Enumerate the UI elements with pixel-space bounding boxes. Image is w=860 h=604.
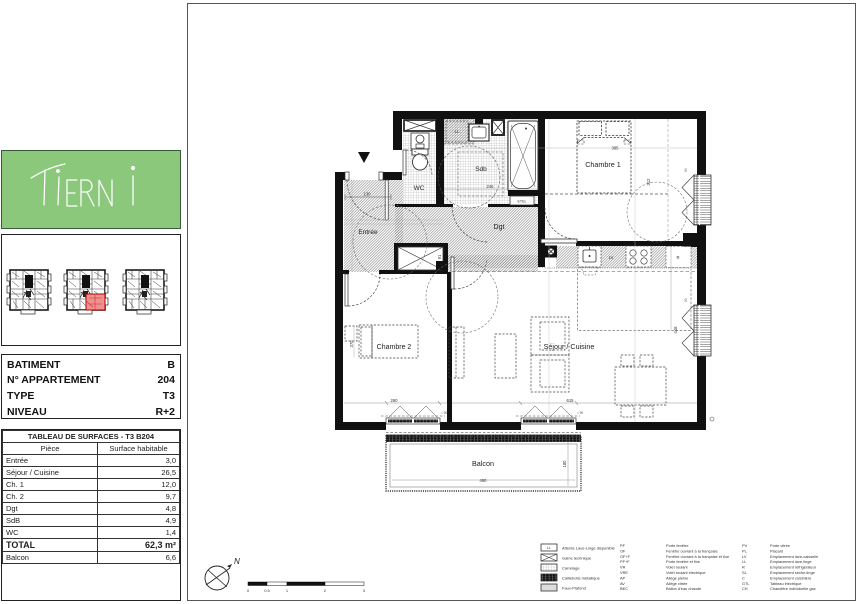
svg-text:R: R [742,565,745,570]
svg-text:SL: SL [742,570,748,575]
svg-text:VRE: VRE [620,570,628,575]
svg-text:Emplacement lave-vaisselle: Emplacement lave-vaisselle [770,554,818,559]
svg-text:PF: PF [620,543,626,548]
svg-text:PV: PV [742,543,748,548]
svg-text:Dgt: Dgt [494,224,505,231]
svg-text:Porte fenêtre: Porte fenêtre [666,543,689,548]
svg-text:CH: CH [742,586,748,591]
svg-text:Chambre 1: Chambre 1 [585,160,621,169]
svg-text:Faux-Plafond: Faux-Plafond [562,586,586,591]
svg-text:0.5: 0.5 [264,588,270,593]
svg-text:ETEL: ETEL [518,200,527,204]
svg-text:LL: LL [547,546,551,550]
svg-text:Emplacement lave-linge: Emplacement lave-linge [770,559,812,564]
svg-text:≈ 90: ≈ 90 [441,411,447,415]
svg-text:90: 90 [684,168,688,172]
svg-text:BEC: BEC [620,586,628,591]
svg-text:OF: OF [620,548,626,553]
svg-text:Emplacement cuisinière: Emplacement cuisinière [770,575,811,580]
svg-text:Ballon d'eau chaude: Ballon d'eau chaude [666,586,701,591]
svg-text:Porte fenêtre et fixe: Porte fenêtre et fixe [666,559,700,564]
svg-text:Volet roulant électrique: Volet roulant électrique [666,570,706,575]
svg-text:Porte vitrée: Porte vitrée [770,543,790,548]
svg-text:90: 90 [684,298,688,302]
svg-text:Volet roulant: Volet roulant [666,565,689,570]
svg-text:Emplacement sèche-linge: Emplacement sèche-linge [770,570,815,575]
svg-text:R: R [676,255,679,260]
svg-text:OF+F: OF+F [620,554,631,559]
svg-text:Fenêtre ouvrant à la française: Fenêtre ouvrant à la française [666,548,718,553]
svg-text:130: 130 [364,192,372,197]
svg-text:Carrelage: Carrelage [562,566,580,571]
svg-text:LV: LV [742,554,747,559]
svg-text:385: 385 [612,146,620,151]
svg-text:Entrée: Entrée [358,229,378,236]
svg-text:Caillebotis métallique: Caillebotis métallique [562,576,601,581]
svg-text:370: 370 [349,340,354,348]
svg-text:Balcon: Balcon [472,459,494,468]
svg-text:490: 490 [480,478,488,483]
svg-text:AV: AV [620,581,625,586]
svg-text:≈ 90: ≈ 90 [577,411,583,415]
svg-text:0: 0 [247,588,250,593]
svg-text:LV: LV [609,255,614,260]
svg-text:91: 91 [437,254,442,259]
svg-text:448: 448 [673,326,678,334]
svg-text:Allège vitrée: Allège vitrée [666,581,687,586]
svg-text:Placard: Placard [770,548,783,553]
svg-text:WC: WC [414,185,425,192]
svg-text:Chambre 2: Chambre 2 [377,344,412,351]
svg-text:PF+F: PF+F [620,559,630,564]
svg-text:N: N [234,557,240,566]
svg-text:Tableau électrique: Tableau électrique [770,581,802,586]
svg-text:180: 180 [562,460,567,468]
svg-text:GTL: GTL [742,581,750,586]
svg-text:LL: LL [742,559,747,564]
svg-text:Allège pleine: Allège pleine [666,575,688,580]
svg-text:312: 312 [646,178,651,186]
svg-text:Sdb: Sdb [475,166,487,173]
svg-text:246: 246 [487,184,495,189]
svg-text:2: 2 [324,588,327,593]
svg-text:1: 1 [286,588,289,593]
svg-text:615: 615 [567,398,575,403]
svg-text:Gaine technique: Gaine technique [562,556,592,561]
svg-text:VR: VR [620,565,626,570]
svg-text:AP: AP [620,575,626,580]
svg-text:C: C [742,575,745,580]
svg-text:PL: PL [742,548,748,553]
svg-text:Emplacement réfrigérateur: Emplacement réfrigérateur [770,565,817,570]
svg-text:3: 3 [363,588,366,593]
svg-text:LL: LL [454,129,460,134]
svg-text:260: 260 [391,398,399,403]
svg-text:Attente Lave-Linge disponible: Attente Lave-Linge disponible [562,546,615,551]
svg-text:Chaudière individuelle gaz: Chaudière individuelle gaz [770,586,816,591]
svg-text:Fenêtre ouvrant à la française: Fenêtre ouvrant à la française et fixe [666,554,729,559]
